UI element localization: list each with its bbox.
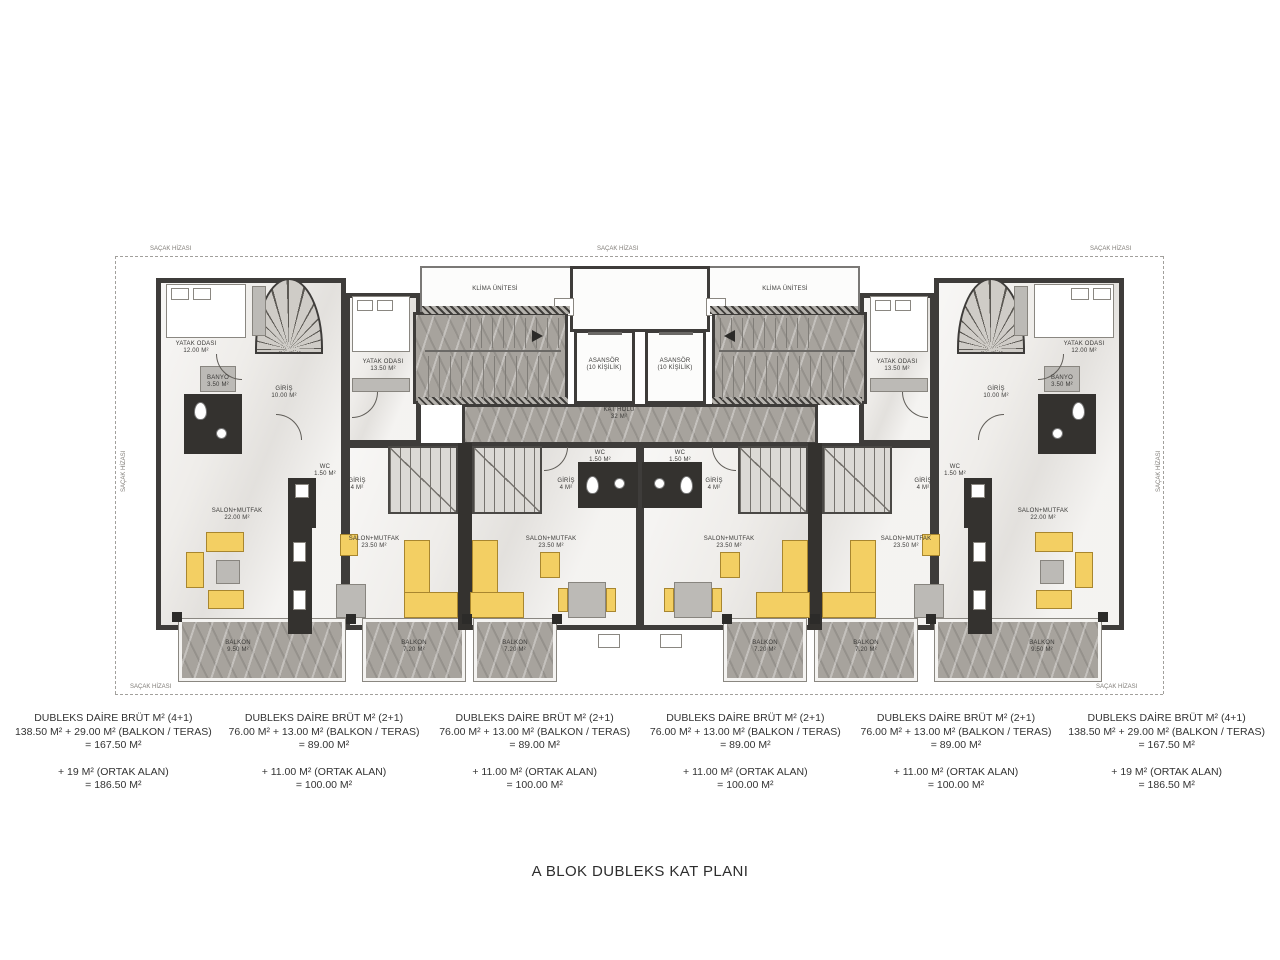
room-label-balkon-unit4: BALKON7.20 M² xyxy=(752,640,778,654)
room-label-yatak-odasi-2-right: YATAK ODASI13.50 M² xyxy=(877,359,918,373)
unit-area-summary-6: DUBLEKS DAİRE BRÜT M² (4+1)138.50 M² + 2… xyxy=(1065,712,1268,793)
eave-label: SAÇAK HİZASI xyxy=(1156,451,1162,492)
wardrobe-ne xyxy=(1014,286,1028,336)
bed-right-2 xyxy=(870,296,928,352)
balcony-unit6 xyxy=(934,618,1102,682)
room-label-balkon-unit2: BALKON7.20 M² xyxy=(401,640,427,654)
room-label-balkon-unit3: BALKON7.20 M² xyxy=(502,640,528,654)
armchair-unit1 xyxy=(186,552,204,588)
cooktop-icon xyxy=(973,590,986,610)
bed-nw xyxy=(166,284,246,338)
pillow xyxy=(377,300,393,311)
room-label-giris-unit2: GİRİŞ4 M² xyxy=(348,478,365,492)
room-label-klima-unitesi-right: KLİMA ÜNİTESİ xyxy=(762,286,808,293)
wall-hatch-2 xyxy=(710,306,858,314)
elevator-door-right xyxy=(659,332,693,335)
wardrobe-left-2 xyxy=(352,378,410,392)
eave-label: SAÇAK HİZASI xyxy=(1090,246,1131,252)
cooktop-icon xyxy=(293,590,306,610)
room-label-yatak-odasi-nw: YATAK ODASI12.00 M² xyxy=(176,341,217,355)
pillow xyxy=(1093,288,1111,300)
eave-line-top xyxy=(115,256,1163,257)
bed-ne xyxy=(1034,284,1114,338)
dining-chairs-unit3 xyxy=(558,588,568,612)
corner-sofa-unit4-b xyxy=(756,592,810,618)
stair-treads-left-upper xyxy=(470,318,560,348)
unit-area-summary-2: DUBLEKS DAİRE BRÜT M² (2+1)76.00 M² + 13… xyxy=(223,712,426,793)
corner-sofa-unit2-b xyxy=(404,592,458,618)
kitchen-strip-left-wing xyxy=(288,528,312,634)
pillow xyxy=(357,300,373,311)
wc-block-unit4 xyxy=(642,462,702,508)
ac-box-center-2 xyxy=(660,634,682,648)
column xyxy=(722,614,732,624)
corner-sofa-unit3-b xyxy=(470,592,524,618)
floor-plan-sheet: SAÇAK HİZASISAÇAK HİZASISAÇAK HİZASISAÇA… xyxy=(0,0,1280,960)
wardrobe-right-2 xyxy=(870,378,928,392)
page-title: A BLOK DUBLEKS KAT PLANI xyxy=(0,863,1280,880)
kitchen-block-right-wing xyxy=(964,478,992,528)
unit-area-legend: DUBLEKS DAİRE BRÜT M² (4+1)138.50 M² + 2… xyxy=(12,712,1268,793)
eave-label: SAÇAK HİZASI xyxy=(150,246,191,252)
eave-line-bottom xyxy=(115,694,1163,695)
room-label-balkon-unit1: BALKON9.50 M² xyxy=(225,640,251,654)
column xyxy=(1098,612,1108,622)
room-label-kat-holu: KAT HOLÜ32 M² xyxy=(603,407,634,421)
column xyxy=(552,614,562,624)
pillow xyxy=(895,300,911,311)
sofa-unit1-b xyxy=(208,590,244,609)
pillow xyxy=(1071,288,1089,300)
room-label-giris-unit5: GİRİŞ4 M² xyxy=(914,478,931,492)
room-label-balkon-unit6: BALKON9.50 M² xyxy=(1029,640,1055,654)
wall-hatch-1 xyxy=(422,306,570,314)
armchair-unit4 xyxy=(720,552,740,578)
coffee-table-unit6 xyxy=(1040,560,1064,584)
balcony-unit1 xyxy=(178,618,346,682)
duplex-stair-unit4 xyxy=(738,446,808,514)
duplex-stair-unit5 xyxy=(822,446,892,514)
dining-chairs-unit4-b xyxy=(712,588,722,612)
armchair-unit6 xyxy=(1075,552,1093,588)
dining-chairs-unit3-b xyxy=(606,588,616,612)
eave-line-left xyxy=(115,256,116,694)
room-label-asansor-left: ASANSÖR(10 KİŞİLİK) xyxy=(586,358,621,372)
room-label-salon-unit6: SALON+MUTFAK22.00 M² xyxy=(1018,508,1069,522)
sink-icon xyxy=(293,542,306,562)
room-label-giris-left: GİRİŞ10.00 M² xyxy=(271,386,296,400)
stair-treads-right-lower xyxy=(722,356,852,400)
toilet-icon xyxy=(680,476,693,494)
eave-label: SAÇAK HİZASI xyxy=(130,684,171,690)
sink-icon xyxy=(973,542,986,562)
sofa-unit1 xyxy=(206,532,244,552)
room-label-balkon-unit5: BALKON7.20 M² xyxy=(853,640,879,654)
room-label-giris-unit3: GİRİŞ4 M² xyxy=(557,478,574,492)
coffee-table-unit1 xyxy=(216,560,240,584)
toilet-icon xyxy=(586,476,599,494)
room-label-yatak-odasi-ne: YATAK ODASI12.00 M² xyxy=(1064,341,1105,355)
unit-area-summary-5: DUBLEKS DAİRE BRÜT M² (2+1)76.00 M² + 13… xyxy=(855,712,1058,793)
fridge-icon xyxy=(295,484,309,498)
room-label-wc-unit6: WC1.50 M² xyxy=(944,464,966,478)
unit-area-summary-4: DUBLEKS DAİRE BRÜT M² (2+1)76.00 M² + 13… xyxy=(644,712,847,793)
room-label-banyo-left: BANYO3.50 M² xyxy=(207,375,229,389)
column xyxy=(462,614,472,624)
bed-left-2 xyxy=(352,296,410,352)
room-label-wc-unit1: WC1.50 M² xyxy=(314,464,336,478)
ac-box-center-1 xyxy=(598,634,620,648)
unit-area-summary-3: DUBLEKS DAİRE BRÜT M² (2+1)76.00 M² + 13… xyxy=(433,712,636,793)
room-label-asansor-right: ASANSÖR(10 KİŞİLİK) xyxy=(657,358,692,372)
dining-chairs-unit4 xyxy=(664,588,674,612)
column xyxy=(346,614,356,624)
room-label-banyo-right: BANYO3.50 M² xyxy=(1051,375,1073,389)
sink-icon xyxy=(1052,428,1063,439)
sink-icon xyxy=(614,478,625,489)
room-label-giris-unit4: GİRİŞ4 M² xyxy=(705,478,722,492)
corner-sofa-unit5-b xyxy=(822,592,876,618)
wardrobe-nw xyxy=(252,286,266,336)
kitchen-strip-right-wing xyxy=(968,528,992,634)
dining-table-unit2 xyxy=(336,584,366,618)
bath-block-right-wing xyxy=(1038,394,1096,454)
bath-block-left-wing xyxy=(184,394,242,454)
core-vent-room xyxy=(570,266,710,332)
eave-line-right xyxy=(1163,256,1164,694)
pillow xyxy=(193,288,211,300)
armchair-unit3 xyxy=(540,552,560,578)
dining-table-unit4 xyxy=(674,582,712,618)
room-label-salon-unit3: SALON+MUTFAK23.50 M² xyxy=(526,536,577,550)
column xyxy=(926,614,936,624)
stair-direction-arrow-right xyxy=(724,330,735,342)
room-label-salon-unit4: SALON+MUTFAK23.50 M² xyxy=(704,536,755,550)
pillow xyxy=(875,300,891,311)
pillow xyxy=(171,288,189,300)
sofa-unit6-b xyxy=(1036,590,1072,609)
eave-label: SAÇAK HİZASI xyxy=(1096,684,1137,690)
wc-block-unit3 xyxy=(578,462,638,508)
eave-label: SAÇAK HİZASI xyxy=(597,246,638,252)
sofa-unit6 xyxy=(1035,532,1073,552)
column xyxy=(172,612,182,622)
eave-label: SAÇAK HİZASI xyxy=(121,451,127,492)
toilet-icon xyxy=(1072,402,1085,420)
room-label-salon-unit2: SALON+MUTFAK23.50 M² xyxy=(349,536,400,550)
column xyxy=(810,614,820,624)
stair-landing-right xyxy=(719,350,855,352)
unit-area-summary-1: DUBLEKS DAİRE BRÜT M² (4+1)138.50 M² + 2… xyxy=(12,712,215,793)
stair-direction-arrow-left xyxy=(532,330,543,342)
room-label-giris-right: GİRİŞ10.00 M² xyxy=(983,386,1008,400)
stair-landing-left xyxy=(425,350,561,352)
room-label-wc-unit4: WC1.50 M² xyxy=(669,450,691,464)
room-label-wc-unit3: WC1.50 M² xyxy=(589,450,611,464)
elevator-door-left xyxy=(588,332,622,335)
dining-table-unit5 xyxy=(914,584,944,618)
duplex-stair-unit2 xyxy=(388,446,458,514)
duplex-stair-unit3 xyxy=(472,446,542,514)
toilet-icon xyxy=(194,402,207,420)
fridge-icon xyxy=(971,484,985,498)
room-label-salon-unit5: SALON+MUTFAK23.50 M² xyxy=(881,536,932,550)
room-label-klima-unitesi-left: KLİMA ÜNİTESİ xyxy=(472,286,518,293)
sink-icon xyxy=(216,428,227,439)
dining-table-unit3 xyxy=(568,582,606,618)
stair-treads-left-lower xyxy=(428,356,558,400)
room-label-yatak-odasi-2-left: YATAK ODASI13.50 M² xyxy=(363,359,404,373)
party-wall-units-4-5 xyxy=(808,443,822,630)
room-label-salon-unit1: SALON+MUTFAK22.00 M² xyxy=(212,508,263,522)
kitchen-block-left-wing xyxy=(288,478,316,528)
floor-hall xyxy=(462,404,818,445)
sink-icon xyxy=(654,478,665,489)
